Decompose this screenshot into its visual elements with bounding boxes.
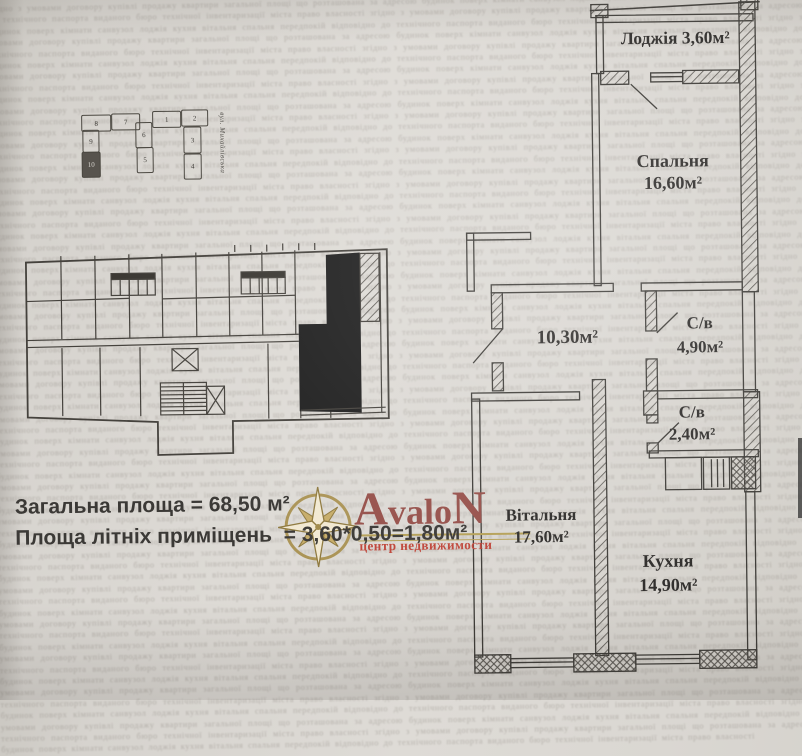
room-name: Спальня (608, 149, 738, 173)
street-label: вул. Михайлівська (218, 112, 227, 192)
photo-edge-artifact (798, 438, 802, 518)
highlighted-apartment (298, 252, 362, 413)
room-area: 3,60м² (682, 27, 730, 48)
room-area: 4,90м² (650, 335, 750, 360)
room-label-bath2: С/в 2,40м² (643, 401, 742, 446)
site-block-highlighted: 10 (82, 152, 101, 178)
room-label-bedroom: Спальня 16,60м² (608, 149, 739, 195)
room-name: Лоджія (621, 28, 678, 49)
room-name: Вітальня (486, 504, 596, 527)
building-plan (26, 242, 390, 456)
room-name: С/в (643, 401, 741, 424)
summer-area-line: Площа літніх приміщень = 3,60*0,50=1,80м… (15, 517, 467, 554)
site-block: 5 (137, 147, 154, 173)
site-block: 1 (152, 111, 181, 128)
page-content: згідно з умовами договору купівлі продаж… (0, 0, 802, 705)
room-name: Кухня (610, 548, 725, 573)
area-summary: Загальна площа = 68,50 м² Площа літніх п… (15, 486, 468, 554)
room-area: 14,90м² (611, 572, 726, 597)
room-area: 17,60м² (486, 526, 596, 549)
room-area: 16,60м² (608, 171, 738, 195)
room-label-bath1: С/в 4,90м² (650, 311, 751, 360)
room-name: С/в (650, 311, 750, 336)
site-block: 3 (183, 126, 201, 153)
room-label-hall: 10,30м² (515, 326, 620, 349)
site-block: 2 (181, 109, 208, 126)
photographed-floor-plan-page: { "floor_plan": { "rooms": { "loggia": {… (0, 0, 802, 700)
room-label-living: Вітальня 17,60м² (486, 504, 597, 549)
room-label-loggia: Лоджія 3,60м² (606, 27, 744, 50)
room-area: 2,40м² (643, 423, 741, 446)
site-block: 4 (184, 153, 202, 179)
summer-area-label: Площа літніх приміщень (15, 524, 278, 550)
room-area: 10,30м² (537, 327, 599, 349)
summer-area-formula: = 3,60*0,50=1,80м² (278, 521, 468, 546)
room-label-kitchen: Кухня 14,90м² (610, 548, 726, 597)
site-block: 9 (82, 130, 99, 153)
site-block: 6 (135, 122, 152, 148)
